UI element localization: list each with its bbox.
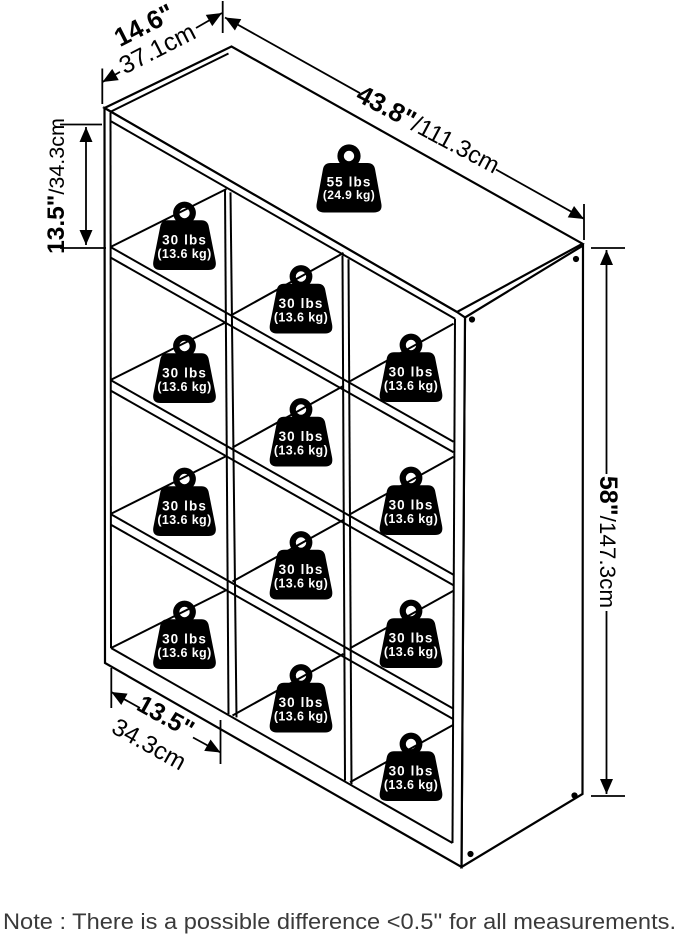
svg-text:Note : There is a possible dif: Note : There is a possible difference <0… bbox=[3, 909, 676, 934]
svg-text:58"/147.3cm: 58"/147.3cm bbox=[594, 476, 622, 608]
svg-text:13.5"/34.3cm: 13.5"/34.3cm bbox=[43, 118, 70, 254]
